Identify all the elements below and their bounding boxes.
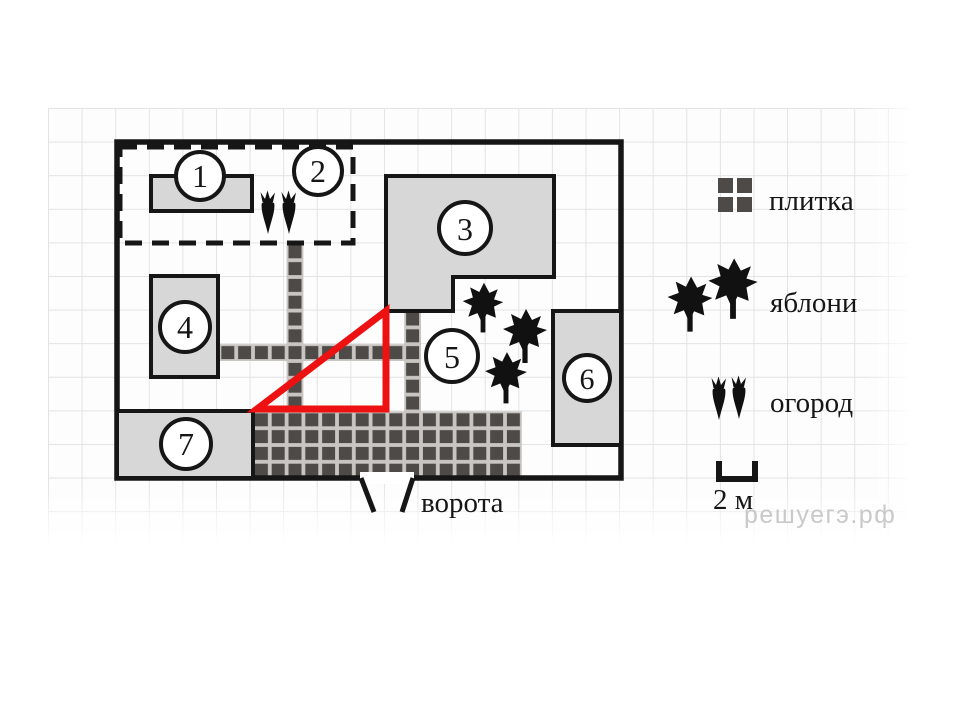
legend-garden-icon (712, 376, 747, 421)
legend-label-tile: плитка (769, 187, 854, 216)
tile-patio-area (253, 411, 522, 478)
screenshot-root: 1 2 3 4 5 6 7 (0, 0, 960, 720)
apple-tree-icon (485, 352, 527, 403)
garden-icon (282, 191, 297, 235)
area-5-number: 5 (444, 339, 460, 375)
gate-opening (360, 472, 414, 484)
gate-label: ворота (421, 489, 504, 518)
building-3-number: 3 (457, 211, 473, 247)
watermark: решуегэ.рф (744, 503, 896, 528)
building-4-number: 4 (177, 309, 193, 345)
site-plan-drawing: 1 2 3 4 5 6 7 (0, 0, 960, 720)
building-1-number: 1 (192, 158, 208, 194)
legend-label-garden: огород (770, 389, 853, 418)
scale-bar-icon (719, 461, 755, 479)
legend-label-apple-trees: яблони (770, 289, 857, 318)
building-6-number: 6 (580, 363, 595, 396)
area-2-number: 2 (310, 153, 326, 189)
legend-apple-trees-icon (668, 258, 758, 331)
building-7-number: 7 (178, 426, 194, 462)
apple-tree-icon (503, 309, 547, 363)
apple-tree-icon (463, 283, 503, 333)
garden-icon (261, 191, 276, 235)
legend-tile-icon (718, 178, 752, 212)
